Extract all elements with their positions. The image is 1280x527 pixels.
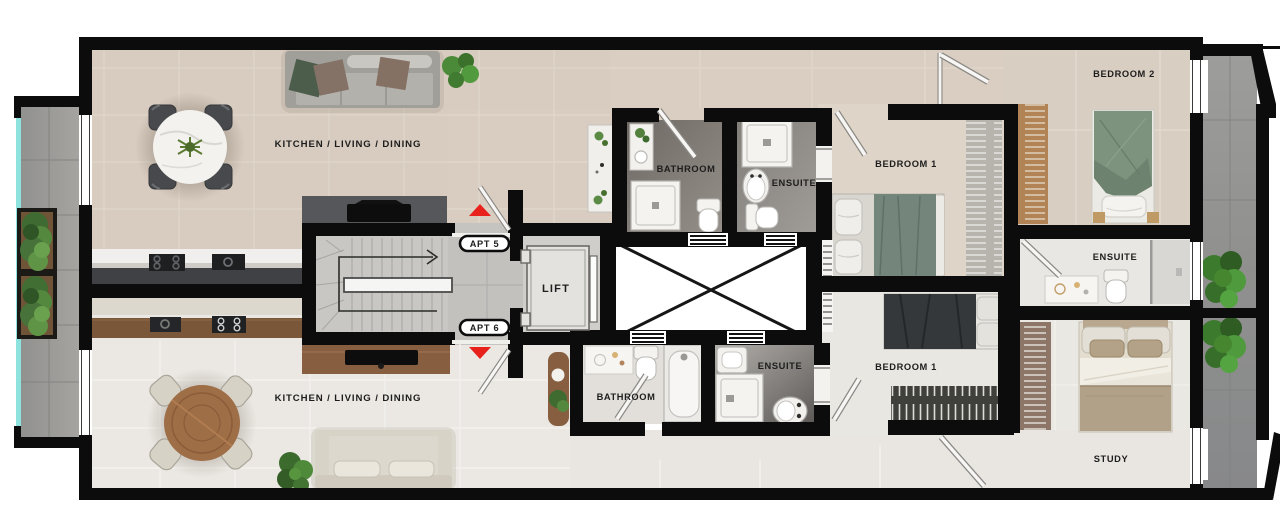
svg-text:BEDROOM 2: BEDROOM 2 [1093,69,1155,79]
svg-text:ENSUITE: ENSUITE [1093,252,1138,262]
svg-text:BATHROOM: BATHROOM [657,164,716,174]
svg-text:BEDROOM 1: BEDROOM 1 [875,362,937,372]
svg-text:LIFT: LIFT [542,283,570,295]
svg-text:KITCHEN / LIVING / DINING: KITCHEN / LIVING / DINING [275,139,422,150]
svg-text:KITCHEN / LIVING / DINING: KITCHEN / LIVING / DINING [275,393,422,404]
svg-text:APT 5: APT 5 [470,239,500,249]
svg-text:BATHROOM: BATHROOM [597,392,656,402]
svg-text:ENSUITE: ENSUITE [772,178,817,188]
svg-text:BEDROOM 1: BEDROOM 1 [875,159,937,169]
svg-text:ENSUITE: ENSUITE [758,361,803,371]
svg-text:APT 6: APT 6 [470,323,500,333]
svg-text:STUDY: STUDY [1094,454,1129,464]
